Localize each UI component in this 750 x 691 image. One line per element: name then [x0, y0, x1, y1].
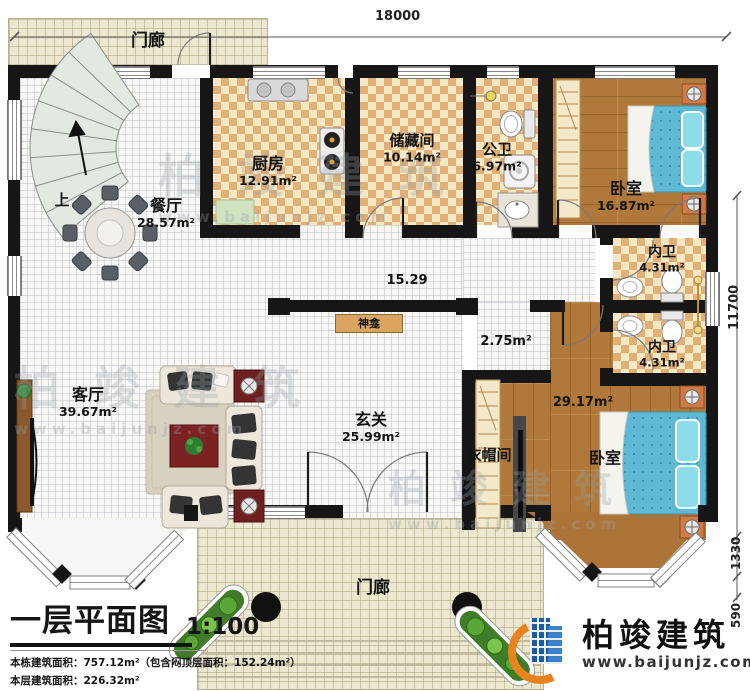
window: [398, 66, 450, 79]
room-label-inner-bath-2: 内卫 4.31m²: [639, 340, 684, 371]
room-label-bedroom-top: 卧室 16.87m²: [597, 179, 655, 213]
wall: [600, 238, 613, 245]
room-label-inner-bath-1: 内卫 4.31m²: [639, 245, 684, 276]
stairs-up-label: 上: [54, 191, 69, 209]
brand-logo-icon: [506, 612, 572, 678]
dim-right-height: 11700: [727, 285, 742, 330]
room-label-dining: 餐厅 28.57m²: [137, 196, 195, 230]
wall: [592, 225, 660, 238]
wall-post: [456, 298, 478, 315]
wall: [530, 300, 565, 312]
brand-name: 柏竣建筑: [582, 619, 750, 653]
dim-top-width: 18000: [375, 9, 420, 24]
wall: [600, 278, 613, 332]
window: [75, 66, 150, 79]
plan-title: 一层平面图: [10, 595, 170, 640]
room-label-cloakroom: 衣帽间: [466, 446, 511, 464]
room-label-bedroom-bottom: 卧室: [589, 448, 621, 467]
wall: [700, 225, 706, 238]
window: [253, 66, 325, 79]
brand-url: www.baijunjz.com: [582, 653, 750, 671]
bedroom-bottom-area: 29.17m²: [553, 395, 613, 411]
title-rule-thin: [10, 650, 206, 651]
room-label-porch-top: 门廊: [131, 31, 165, 51]
room-label-public-bath: 公卫 6.97m²: [472, 141, 521, 174]
door-opening: [172, 65, 210, 78]
living-bay-floor: [20, 518, 196, 580]
wall: [200, 78, 213, 238]
kitchen-floor: [213, 78, 345, 225]
door-opening: [338, 65, 353, 78]
shrine-cabinet: 神龛: [335, 314, 403, 333]
title-rule: [10, 643, 192, 647]
window: [487, 66, 519, 79]
total-area-line: 本栋建筑面积：757.12m²（包含闷顶层面积：152.24m²）: [10, 655, 301, 670]
wall: [613, 300, 706, 313]
floor-plan-page: 柏竣建筑 www.baijunjz.com 柏竣建筑 www.baijunjz.…: [0, 0, 750, 691]
wall: [600, 373, 706, 386]
window: [7, 100, 22, 180]
wall: [270, 300, 477, 312]
logo-building-shape-2: [548, 626, 562, 664]
hall-width-label: 15.29: [386, 273, 427, 289]
window: [7, 256, 22, 296]
room-label-porch-bottom: 门廊: [356, 578, 390, 598]
title-block: 一层平面图 1:100 本栋建筑面积：757.12m²（包含闷顶层面积：152.…: [10, 595, 301, 691]
floor-area-line: 本层建筑面积：226.32m²: [10, 673, 301, 688]
wall: [468, 505, 538, 518]
plan-scale: 1:100: [186, 614, 259, 640]
wall: [538, 78, 553, 238]
window: [595, 66, 675, 79]
room-label-foyer: 玄关 25.99m²: [342, 410, 400, 444]
wall: [200, 225, 300, 238]
wall: [462, 370, 551, 383]
wall-post: [268, 298, 290, 315]
room-label-storage: 储藏间 10.14m²: [383, 132, 441, 165]
wall: [345, 78, 360, 238]
brand-logo: 柏竣建筑 www.baijunjz.com: [506, 612, 750, 678]
room-label-kitchen: 厨房 12.91m²: [239, 154, 297, 188]
small-area-label: 2.75m²: [480, 334, 531, 350]
room-label-living: 客厅 39.67m²: [59, 385, 117, 419]
logo-building-shape: [530, 618, 550, 664]
wall: [345, 225, 363, 238]
wall: [512, 225, 558, 238]
window: [705, 272, 720, 326]
hallway-floor: [463, 238, 595, 302]
wall: [403, 225, 476, 238]
dim-bay-depth: 1330: [729, 537, 743, 570]
window: [225, 506, 305, 519]
